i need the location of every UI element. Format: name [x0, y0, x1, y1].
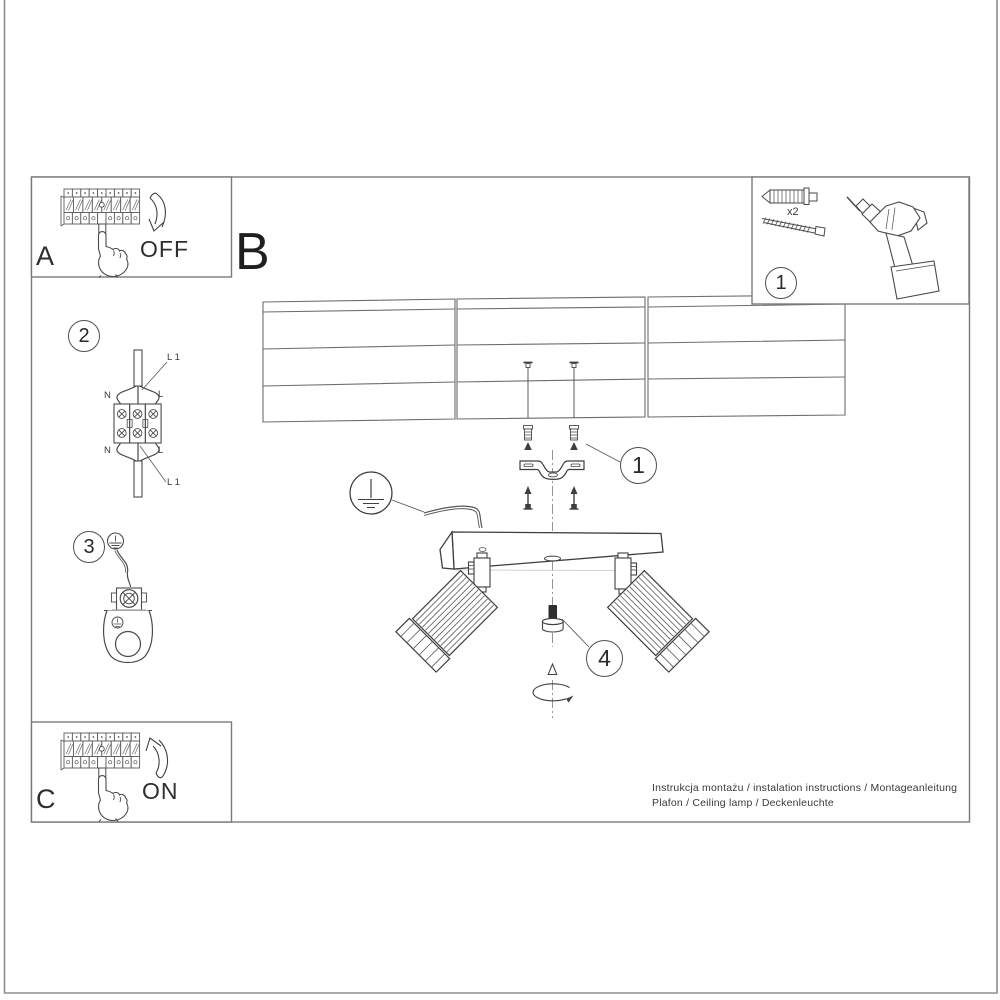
rotation-arrow-drawing	[533, 664, 573, 703]
footer-line-2: Plafon / Ceiling lamp / Deckenleuchte	[652, 798, 834, 809]
footer-line-1: Instrukcja montażu / instalation instruc…	[652, 783, 957, 794]
earth-symbol-drawing	[350, 472, 424, 514]
terminal-l-bottom: L	[158, 446, 163, 456]
wire-l1-bottom: L 1	[167, 478, 180, 488]
tools-step-badge: 1	[765, 267, 797, 299]
terminal-l-top: L	[158, 390, 163, 400]
terminal-n-bottom: N	[104, 446, 111, 456]
mounting-bracket-drawing	[520, 444, 620, 479]
panel-a-letter: A	[36, 243, 54, 270]
screw-count-label: x2	[787, 207, 799, 218]
ground-wire-drawing	[424, 506, 482, 528]
terminal-block-drawing	[114, 350, 167, 497]
anchors-step-badge: 1	[620, 447, 657, 484]
wire-l1-top: L 1	[167, 353, 180, 363]
ceiling-drawing	[263, 295, 845, 422]
panel-c-letter: C	[36, 786, 56, 813]
adjust-step-badge: 4	[586, 640, 623, 677]
on-label: ON	[142, 780, 179, 803]
ground-step-badge: 3	[73, 531, 105, 563]
line-art	[0, 0, 1000, 1000]
off-label: OFF	[140, 238, 189, 261]
section-b-letter: B	[235, 226, 270, 278]
wiring-step-badge: 2	[68, 320, 100, 352]
ground-clamp-drawing	[104, 533, 153, 663]
outer-page-border	[5, 0, 998, 993]
terminal-n-top: N	[104, 391, 111, 401]
fixing-screw-drawing	[543, 605, 590, 647]
instruction-sheet: A OFF B C ON x2 1 2 3 1 4 N L L 1 N L L …	[0, 0, 1000, 1000]
